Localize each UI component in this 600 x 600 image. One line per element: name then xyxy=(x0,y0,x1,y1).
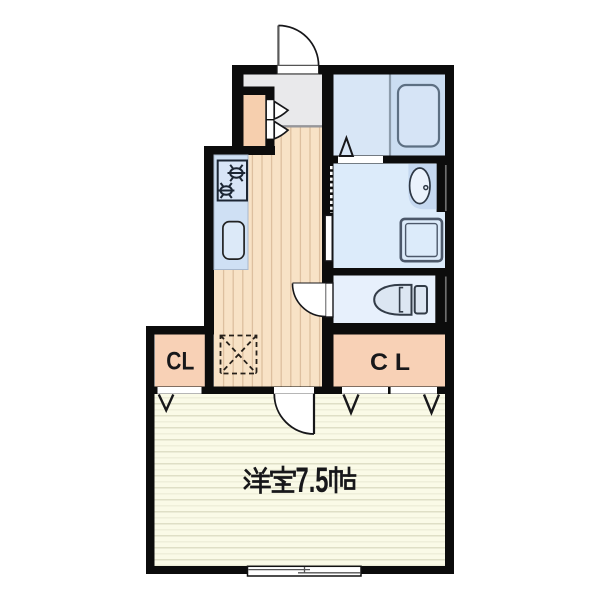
svg-text:CL: CL xyxy=(166,347,194,375)
svg-text:C L: C L xyxy=(370,349,410,376)
svg-text:7.5: 7.5 xyxy=(296,461,329,500)
